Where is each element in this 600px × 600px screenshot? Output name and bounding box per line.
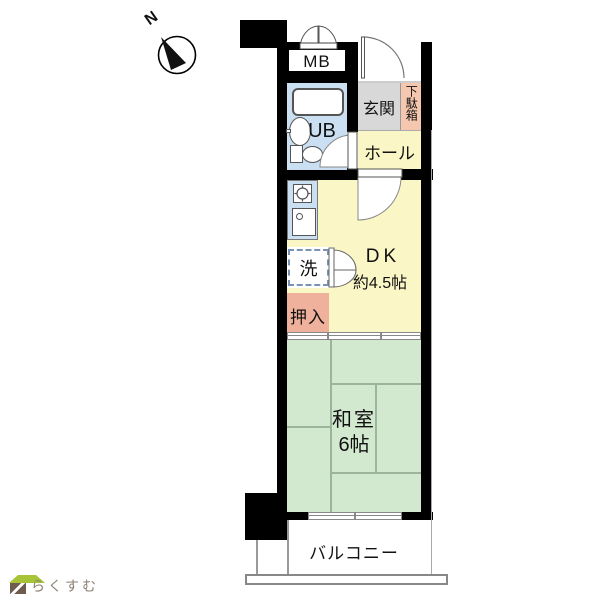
hall-label: ホール <box>358 139 421 164</box>
entrance-door <box>362 37 405 78</box>
stove-burner-icon <box>295 186 311 202</box>
dk-size-label: 約4.5帖 <box>338 269 422 293</box>
washitsu-size-label: 6帖 <box>287 428 421 457</box>
genkan-label: 玄関 <box>358 95 400 119</box>
logo-text: らくすむ <box>31 576 99 596</box>
dk-door <box>358 169 402 220</box>
balcony-label: バルコニー <box>287 539 421 564</box>
compass-icon <box>159 37 196 74</box>
logo-house-body-icon <box>10 583 26 594</box>
meter-box-doors <box>300 26 337 49</box>
oshiire-label: 押入 <box>287 303 329 328</box>
mb-label: MB <box>287 52 347 72</box>
ub-label: UB <box>292 120 352 143</box>
plan-symbols <box>0 0 600 600</box>
getabako-label: 下駄箱 <box>404 85 417 129</box>
floor-plan: 洗 <box>0 0 600 600</box>
dk-name-label: DK <box>345 246 421 268</box>
